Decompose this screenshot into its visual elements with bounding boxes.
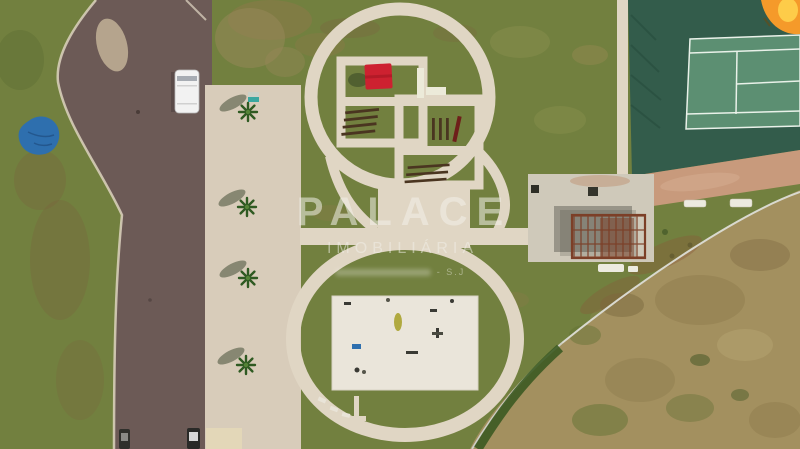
wooden-bench-rows-lower [404, 163, 451, 183]
road-spot [136, 110, 140, 114]
parked-car [187, 428, 200, 449]
plaza-drain [531, 185, 539, 193]
road-spot [148, 298, 152, 302]
plaza-drain [588, 187, 598, 196]
plaza-rust-streak [570, 175, 630, 187]
fitness-plaza [332, 296, 478, 390]
white-van [171, 70, 199, 113]
aerial-photo-condo-leisure-area: PALACE IMOBILIÁRIA - S.J [0, 0, 800, 449]
plaza-bench [628, 266, 638, 272]
path-crossbar [341, 97, 480, 106]
playground-red-canopy [364, 63, 392, 89]
playground-table [426, 87, 446, 95]
path-center-block [378, 186, 470, 248]
parked-car [119, 429, 130, 449]
path-crossbar [399, 146, 479, 155]
playground-bench-white [417, 68, 424, 98]
sidewalk [205, 85, 301, 449]
aerial-scene [0, 0, 800, 449]
plaza-bench [598, 264, 624, 272]
court-side-walkway [617, 0, 628, 180]
drinking-fountain [248, 92, 259, 102]
sidewalk-marking [206, 428, 242, 449]
